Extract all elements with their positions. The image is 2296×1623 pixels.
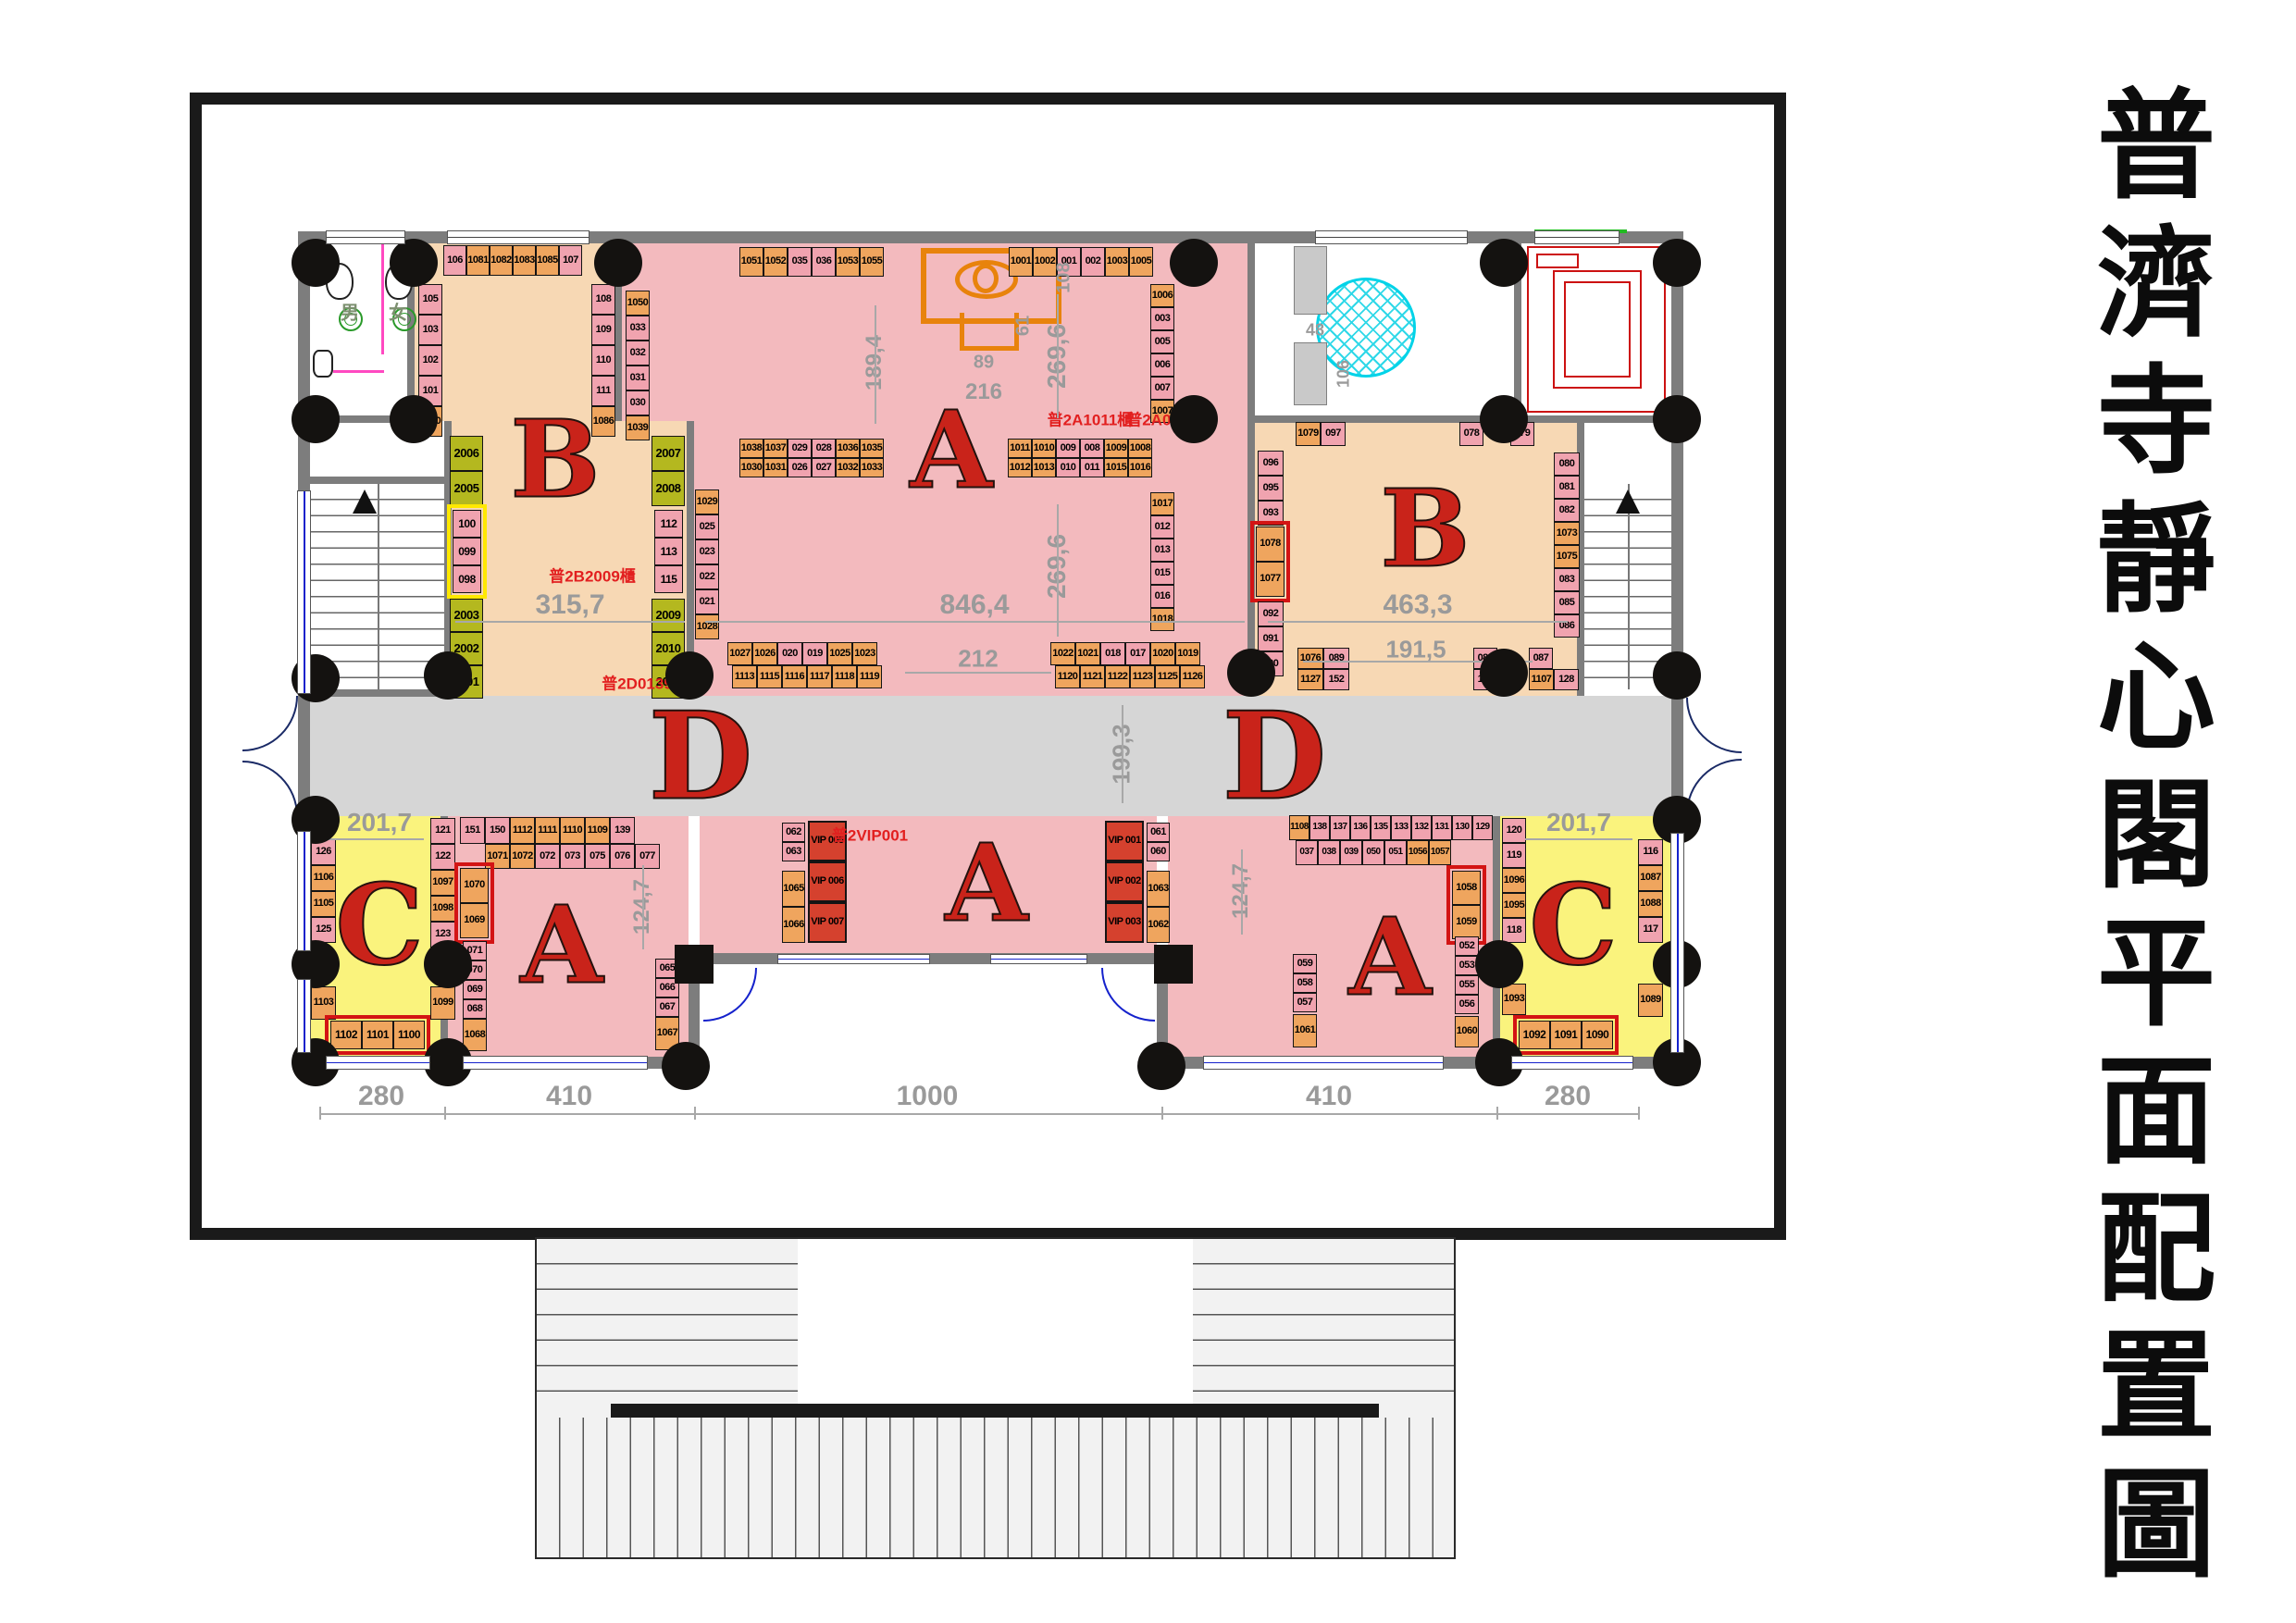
niche-box-1025: 1025 — [827, 642, 852, 665]
structural-column — [1170, 239, 1218, 287]
structural-column — [1475, 940, 1523, 988]
niche-box-1103: 1103 — [311, 986, 336, 1020]
structural-column — [1480, 239, 1528, 287]
locker-strip-15: 1011101000900810091008 — [1008, 439, 1152, 458]
niche-box-055: 055 — [1455, 975, 1479, 995]
niche-box-2006: 2006 — [450, 436, 483, 471]
niche-box-1119: 1119 — [857, 665, 882, 688]
dimension-label: 280 — [1545, 1081, 1591, 1112]
niche-box-018: 018 — [1100, 642, 1125, 665]
locker-strip-34: 1107128 — [1529, 669, 1579, 690]
niche-box-1005: 1005 — [1129, 247, 1153, 277]
dimension-line — [1057, 504, 1059, 637]
niche-box-038: 038 — [1318, 840, 1340, 865]
niche-box-067: 067 — [655, 997, 679, 1017]
dimension-label: 108 — [1054, 262, 1075, 292]
niche-box-1035: 1035 — [860, 439, 884, 458]
niche-box-1115: 1115 — [757, 665, 782, 688]
niche-box-1018: 1018 — [1150, 608, 1174, 631]
stair-rail — [1628, 484, 1630, 689]
section-letter-A: A — [520, 884, 602, 1009]
locker-strip-52: VIP 001VIP 002VIP 003 — [1105, 821, 1144, 943]
niche-box-1120: 1120 — [1055, 665, 1080, 688]
niche-box-1021: 1021 — [1075, 642, 1100, 665]
dimension-label: 201,7 — [1546, 808, 1611, 837]
window — [326, 1056, 430, 1070]
niche-box-1077: 1077 — [1256, 562, 1285, 597]
title-char: 寺 — [2097, 342, 2215, 480]
zone-label: 普2A1011櫃 — [1048, 407, 1134, 430]
dimension-line — [1525, 838, 1632, 840]
dimension-tick — [694, 1107, 696, 1120]
niche-box-1016: 1016 — [1128, 458, 1152, 477]
dimension-line — [1122, 705, 1123, 803]
niche-box-105: 105 — [418, 284, 442, 315]
niche-box-080: 080 — [1554, 452, 1580, 476]
niche-box-129: 129 — [1472, 815, 1493, 840]
zone-label: 普2B2009櫃 — [549, 564, 636, 587]
niche-box-1085: 1085 — [536, 245, 559, 276]
niche-box-026: 026 — [788, 458, 812, 477]
locker-strip-0: 1061081108210831085107 — [443, 245, 582, 276]
niche-box-082: 082 — [1554, 499, 1580, 522]
niche-box-1116: 1116 — [782, 665, 807, 688]
niche-box-028: 028 — [812, 439, 836, 458]
niche-box-108: 108 — [591, 284, 615, 315]
zone-label: 普2VIP001 — [832, 823, 908, 846]
niche-box-025: 025 — [695, 514, 719, 539]
niche-box-069: 069 — [463, 980, 487, 999]
niche-box-112: 112 — [654, 510, 683, 538]
niche-box-1097: 1097 — [430, 870, 455, 896]
niche-box-008: 008 — [1080, 439, 1104, 458]
niche-box-102: 102 — [418, 345, 442, 376]
dimension-line — [326, 838, 424, 840]
niche-box-015: 015 — [1150, 562, 1174, 585]
niche-box-1092: 1092 — [1519, 1021, 1550, 1049]
niche-box-023: 023 — [695, 539, 719, 564]
niche-box-016: 016 — [1150, 585, 1174, 608]
locker-strip-12: 10290250230220211028 — [695, 489, 719, 639]
structural-column — [1137, 1042, 1185, 1090]
niche-box-2007: 2007 — [652, 436, 685, 471]
niche-box-115: 115 — [654, 565, 683, 593]
niche-box-1050: 1050 — [626, 291, 650, 316]
niche-box-1110: 1110 — [560, 817, 585, 844]
niche-box-063: 063 — [782, 842, 805, 861]
niche-box-118: 118 — [1502, 918, 1526, 943]
locker-strip-63: 1089 — [1638, 984, 1663, 1017]
niche-box-1006: 1006 — [1150, 284, 1174, 307]
niche-box-050: 050 — [1362, 840, 1384, 865]
structural-column — [662, 1042, 710, 1090]
niche-box-1019: 1019 — [1175, 642, 1200, 665]
niche-box-081: 081 — [1554, 476, 1580, 499]
dimension-label: 463,3 — [1383, 589, 1452, 621]
dimension-line — [705, 621, 1245, 623]
dimension-label: 410 — [1306, 1081, 1352, 1112]
niche-box-1069: 1069 — [460, 903, 489, 938]
niche-box-011: 011 — [1080, 458, 1104, 477]
niche-box-1055: 1055 — [860, 247, 884, 277]
stair-up-arrow-icon — [1616, 489, 1640, 514]
niche-box-086: 086 — [1554, 614, 1580, 638]
locker-strip-7: 112113115 — [654, 510, 683, 593]
stair-up-arrow-icon — [353, 489, 377, 514]
dimension-label: 315,7 — [535, 589, 604, 621]
niche-box-087: 087 — [1529, 648, 1553, 669]
dimension-line — [455, 621, 685, 623]
locker-strip-36: 10711072072073075076077 — [485, 844, 660, 869]
dimension-label: 280 — [358, 1081, 404, 1112]
niche-box-1036: 1036 — [836, 439, 860, 458]
niche-box-097: 097 — [1321, 422, 1346, 446]
locker-strip-62: 11610871088117 — [1638, 839, 1663, 943]
niche-box-117: 117 — [1638, 917, 1663, 943]
locker-strip-61: 1093 — [1502, 984, 1526, 1015]
niche-box-060: 060 — [1147, 842, 1170, 861]
niche-box-1101: 1101 — [362, 1021, 393, 1049]
dimension-label: 212 — [958, 645, 998, 674]
locker-strip-21: 10060030050060071007 — [1150, 284, 1174, 423]
niche-box-005: 005 — [1150, 330, 1174, 353]
niche-box-029: 029 — [788, 439, 812, 458]
niche-box-2003: 2003 — [450, 599, 483, 632]
niche-box-027: 027 — [812, 458, 836, 477]
toilet-partition — [381, 239, 384, 354]
window — [297, 831, 311, 951]
niche-box-021: 021 — [695, 589, 719, 614]
niche-box-035: 035 — [788, 247, 812, 277]
steps-center-landing — [798, 1239, 1193, 1404]
niche-box-1023: 1023 — [852, 642, 877, 665]
niche-box-033: 033 — [626, 316, 650, 341]
niche-box-058: 058 — [1293, 973, 1317, 993]
niche-box-1039: 1039 — [626, 415, 650, 440]
section-letter-C: C — [1529, 861, 1618, 991]
structural-column — [1653, 651, 1701, 700]
entrance-steps — [535, 1237, 1456, 1559]
niche-box-1099: 1099 — [430, 986, 455, 1020]
locker-strip-55: 059058057 — [1293, 954, 1317, 1012]
structural-column — [390, 395, 438, 443]
niche-box-1003: 1003 — [1105, 247, 1129, 277]
locker-strip-50: 10651066 — [782, 871, 805, 943]
locker-strip-14: 1030103102602710321033 — [739, 458, 884, 477]
niche-box-121: 121 — [430, 818, 455, 844]
window — [990, 954, 1087, 964]
window — [297, 979, 311, 1053]
stair-rail — [378, 484, 379, 689]
wall-atop-east — [1247, 239, 1255, 696]
niche-box-032: 032 — [626, 341, 650, 365]
niche-box-1070: 1070 — [460, 868, 489, 903]
elevator-door-outline — [1536, 254, 1579, 268]
locker-strip-13: 1038103702902810361035 — [739, 439, 884, 458]
niche-box-061: 061 — [1147, 823, 1170, 842]
niche-box-103: 103 — [418, 315, 442, 345]
niche-box-VIP-006: VIP 006 — [808, 861, 847, 902]
window — [297, 490, 311, 694]
niche-box-099: 099 — [453, 538, 481, 565]
niche-box-037: 037 — [1296, 840, 1318, 865]
title-char: 面 — [2097, 1032, 2215, 1170]
niche-box-1100: 1100 — [393, 1021, 425, 1049]
table — [1294, 246, 1327, 315]
niche-box-100: 100 — [453, 510, 481, 538]
niche-box-110: 110 — [591, 345, 615, 376]
dimension-label: 89 — [974, 353, 994, 374]
locker-strip-58: 10581059 — [1452, 871, 1481, 939]
niche-box-1118: 1118 — [832, 665, 857, 688]
niche-box-019: 019 — [802, 642, 827, 665]
locker-strip-18: 111311151116111711181119 — [732, 665, 882, 688]
niche-box-051: 051 — [1384, 840, 1407, 865]
niche-box-072: 072 — [535, 844, 560, 869]
niche-box-092: 092 — [1258, 601, 1284, 626]
locker-strip-22: 10170120130150161018 — [1150, 492, 1174, 631]
niche-box-1071: 1071 — [485, 844, 510, 869]
niche-box-1098: 1098 — [430, 896, 455, 922]
locker-strip-43: 110211011100 — [330, 1021, 425, 1049]
entrance-recess — [700, 964, 1157, 1057]
niche-box-1062: 1062 — [1147, 907, 1170, 943]
locker-strip-30: 1076089 — [1297, 648, 1349, 669]
niche-box-1012: 1012 — [1008, 458, 1032, 477]
niche-box-1093: 1093 — [1502, 984, 1526, 1015]
niche-box-1020: 1020 — [1150, 642, 1175, 665]
structural-column — [1480, 649, 1528, 697]
structural-pier — [1154, 945, 1193, 984]
dimension-line — [319, 1113, 1638, 1115]
window — [1511, 1056, 1633, 1070]
section-letter-A: A — [945, 822, 1027, 947]
locker-strip-11: 10500330320310301039 — [626, 291, 650, 440]
niche-box-1001: 1001 — [1009, 247, 1033, 277]
niche-box-VIP-007: VIP 007 — [808, 902, 847, 943]
niche-box-1076: 1076 — [1297, 648, 1323, 669]
locker-strip-20: 112011211122112311251126 — [1055, 665, 1205, 688]
niche-box-1008: 1008 — [1128, 439, 1152, 458]
niche-box-1088: 1088 — [1638, 891, 1663, 917]
niche-box-1011: 1011 — [1008, 439, 1032, 458]
title-char: 平 — [2097, 894, 2215, 1032]
niche-box-062: 062 — [782, 823, 805, 842]
window — [1315, 230, 1468, 244]
altar-eye-pupil-icon — [973, 264, 999, 293]
dimension-tick — [1496, 1107, 1498, 1120]
niche-box-002: 002 — [1081, 247, 1105, 277]
structural-column — [665, 651, 714, 700]
window — [447, 230, 590, 244]
structural-column — [1170, 395, 1218, 443]
locker-strip-33: 087 — [1529, 648, 1553, 669]
niche-box-1081: 1081 — [466, 245, 490, 276]
window — [1670, 833, 1684, 1053]
niche-box-1051: 1051 — [739, 247, 763, 277]
niche-box-007: 007 — [1150, 377, 1174, 400]
wall-cright-west — [1493, 816, 1500, 1057]
elevator-car-inner — [1564, 281, 1631, 378]
title-char: 心 — [2097, 618, 2215, 756]
structural-column — [1227, 649, 1275, 697]
niche-box-1078: 1078 — [1256, 527, 1285, 562]
niche-box-039: 039 — [1340, 840, 1362, 865]
window — [326, 230, 405, 244]
section-letter-D: D — [649, 686, 753, 827]
niche-box-122: 122 — [430, 844, 455, 870]
locker-strip-40: 1103 — [311, 986, 336, 1020]
locker-strip-19: 1022102101801710201019 — [1050, 642, 1200, 665]
title-char: 靜 — [2097, 480, 2215, 618]
locker-strip-39: 12611061105125 — [311, 839, 336, 943]
niche-box-1091: 1091 — [1550, 1021, 1582, 1049]
structural-column — [1480, 395, 1528, 443]
niche-box-006: 006 — [1150, 353, 1174, 377]
niche-box-1027: 1027 — [727, 642, 752, 665]
niche-box-096: 096 — [1258, 451, 1284, 476]
niche-box-1053: 1053 — [836, 247, 860, 277]
niche-box-1013: 1013 — [1032, 458, 1056, 477]
niche-box-1112: 1112 — [510, 817, 535, 844]
room-a-bottom-center — [700, 816, 1157, 953]
niche-box-1056: 1056 — [1407, 840, 1429, 865]
niche-box-1037: 1037 — [763, 439, 788, 458]
niche-box-1083: 1083 — [513, 245, 536, 276]
niche-box-1022: 1022 — [1050, 642, 1075, 665]
structural-column — [594, 239, 642, 287]
dimension-tick — [319, 1107, 321, 1120]
locker-strip-44: 10701069 — [460, 868, 489, 938]
niche-box-1032: 1032 — [836, 458, 860, 477]
sink-icon — [313, 350, 333, 378]
title-char: 濟 — [2097, 204, 2215, 342]
dimension-line — [905, 672, 1051, 674]
toilet-men-label: 男 — [341, 298, 359, 325]
niche-box-1065: 1065 — [782, 871, 805, 907]
corridor-d — [310, 696, 1671, 816]
niche-box-1066: 1066 — [782, 907, 805, 943]
section-letter-A: A — [1348, 896, 1431, 1021]
title-char: 圖 — [2097, 1445, 2215, 1583]
niche-box-068: 068 — [463, 999, 487, 1019]
niche-box-120: 120 — [1502, 818, 1526, 843]
section-letter-D: D — [1222, 686, 1327, 827]
dimension-tick — [1161, 1107, 1163, 1120]
niche-box-013: 013 — [1150, 539, 1174, 562]
niche-box-056: 056 — [1455, 995, 1479, 1014]
niche-box-1033: 1033 — [860, 458, 884, 477]
niche-box-083: 083 — [1554, 568, 1580, 591]
steps-right-flight — [1193, 1239, 1454, 1404]
dimension-label: 1000 — [897, 1081, 959, 1112]
niche-box-030: 030 — [626, 390, 650, 415]
locker-strip-38: 03703803905005110561057 — [1296, 840, 1451, 865]
niche-box-017: 017 — [1125, 642, 1150, 665]
niche-box-085: 085 — [1554, 591, 1580, 614]
structural-column — [424, 651, 472, 700]
niche-box-1038: 1038 — [739, 439, 763, 458]
locker-strip-42: 1099 — [430, 986, 455, 1020]
page-title-vertical: 普濟寺靜心閣平面配置圖 — [2008, 67, 2296, 1583]
niche-box-1121: 1121 — [1080, 665, 1105, 688]
floor-plan-canvas: 男 女 106108110821083108510710510310210110… — [0, 0, 2296, 1623]
locker-strip-27: 10781077 — [1256, 527, 1285, 597]
dimension-line — [875, 305, 876, 424]
niche-box-1095: 1095 — [1502, 893, 1526, 918]
locker-strip-49: 062063 — [782, 823, 805, 861]
locker-strip-53: 061060 — [1147, 823, 1170, 861]
steps-lower-treads — [537, 1418, 1454, 1557]
niche-box-093: 093 — [1258, 501, 1284, 526]
niche-box-119: 119 — [1502, 843, 1526, 868]
altar-base-outline — [960, 313, 1019, 351]
dimension-label: 48 — [1306, 321, 1324, 341]
niche-box-1060: 1060 — [1455, 1016, 1479, 1047]
dimension-line — [642, 865, 644, 949]
locker-strip-10: 1001100200100210031005 — [1009, 247, 1153, 277]
niche-box-089: 089 — [1323, 648, 1349, 669]
niche-box-095: 095 — [1258, 476, 1284, 501]
niche-box-VIP-003: VIP 003 — [1105, 902, 1144, 943]
title-char: 配 — [2097, 1170, 2215, 1307]
toilet-women-label: 女 — [389, 298, 407, 325]
title-char: 置 — [2097, 1307, 2215, 1445]
dimension-label: 106 — [1334, 360, 1354, 388]
niche-box-003: 003 — [1150, 307, 1174, 330]
niche-box-113: 113 — [654, 538, 683, 565]
niche-box-1073: 1073 — [1554, 522, 1580, 545]
dimension-label: 410 — [546, 1081, 592, 1112]
locker-strip-56: 1061 — [1293, 1014, 1317, 1047]
section-letter-C: C — [335, 861, 424, 991]
locker-strip-4: 100099098 — [453, 510, 481, 593]
niche-box-009: 009 — [1056, 439, 1080, 458]
niche-box-052: 052 — [1455, 936, 1479, 956]
niche-box-1096: 1096 — [1502, 868, 1526, 893]
niche-box-137: 137 — [1330, 815, 1350, 840]
locker-strip-17: 1027102602001910251023 — [727, 642, 877, 665]
dimension-tick — [1638, 1107, 1640, 1120]
niche-box-1029: 1029 — [695, 489, 719, 514]
niche-box-1123: 1123 — [1130, 665, 1155, 688]
locker-strip-64: 109210911090 — [1519, 1021, 1613, 1049]
dimension-line — [1057, 294, 1059, 418]
niche-box-152: 152 — [1323, 669, 1349, 690]
locker-strip-54: 10631062 — [1147, 871, 1170, 943]
niche-box-VIP-002: VIP 002 — [1105, 861, 1144, 902]
window — [1203, 1056, 1444, 1070]
steps-left-flight — [537, 1239, 798, 1404]
wall-stair-top — [310, 477, 444, 484]
locker-strip-16: 1012101301001110151016 — [1008, 458, 1152, 477]
niche-box-125: 125 — [311, 917, 336, 943]
niche-box-1058: 1058 — [1452, 871, 1481, 905]
niche-box-131: 131 — [1432, 815, 1452, 840]
niche-box-012: 012 — [1150, 515, 1174, 539]
niche-box-133: 133 — [1391, 815, 1411, 840]
niche-box-1106: 1106 — [311, 865, 336, 891]
section-letter-B: B — [510, 398, 600, 523]
niche-box-1102: 1102 — [330, 1021, 362, 1049]
dimension-label: 201,7 — [347, 808, 412, 837]
locker-strip-3: 20062005 — [450, 436, 483, 506]
dimension-line — [1241, 849, 1243, 935]
window — [1534, 230, 1620, 244]
niche-box-1122: 1122 — [1105, 665, 1130, 688]
dimension-label: 191,5 — [1385, 636, 1446, 664]
niche-box-031: 031 — [626, 365, 650, 390]
